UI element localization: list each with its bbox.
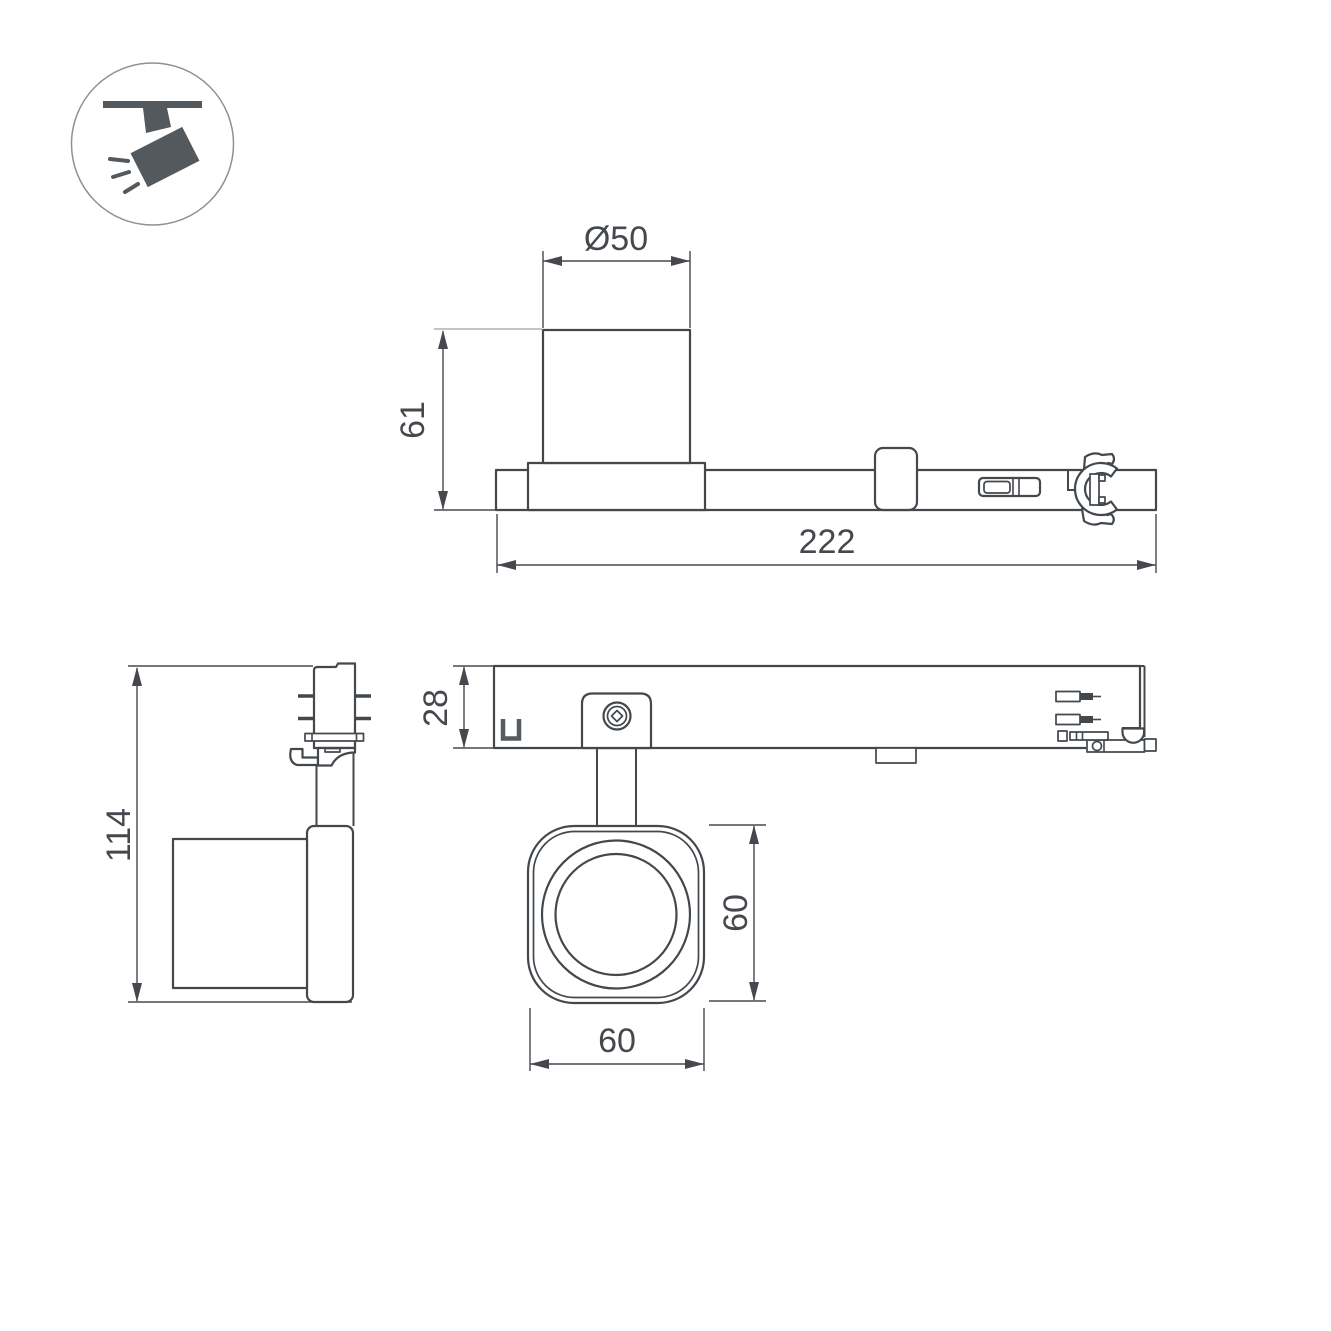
small-terminal [1058, 731, 1067, 741]
arrowhead-top [438, 330, 448, 349]
power-box [875, 448, 917, 510]
extension-lines [543, 251, 690, 328]
arrowhead-bottom [749, 982, 759, 1001]
arrowhead-bottom [459, 729, 469, 748]
latch-pin-top-foot [1099, 475, 1105, 481]
end-stub [1145, 739, 1157, 751]
legend-badge [72, 63, 234, 225]
dim-label-length-222: 222 [799, 523, 856, 561]
dim-label-diameter-50: Ø50 [584, 220, 648, 258]
extension-lines [453, 666, 493, 748]
dim-label-head-width-60: 60 [598, 1022, 636, 1060]
latch-pin-bottom-foot [1099, 497, 1105, 503]
latch-pin [1090, 474, 1099, 505]
dim-label-head-height-60: 60 [717, 894, 755, 932]
dim-label-height-61: 61 [394, 401, 432, 439]
arrowhead-left [543, 256, 562, 266]
pin-tip [1080, 716, 1093, 723]
arrowhead-bottom [132, 983, 142, 1002]
arrowhead-top [749, 825, 759, 844]
dimension-diameter-50: Ø50 [543, 220, 690, 328]
lens-ring-inner [556, 854, 677, 975]
dimension-length-222: 222 [497, 514, 1156, 573]
arrowhead-top [459, 666, 469, 685]
dim-label-track-height-28: 28 [417, 689, 455, 727]
adapter-hook [290, 749, 318, 765]
view-profile: 114 [100, 664, 371, 1003]
adapter-under-tab [876, 748, 916, 763]
dimension-head-width-60: 60 [530, 1008, 704, 1071]
arrowhead-top [132, 667, 142, 686]
arrowhead-right [685, 1059, 704, 1069]
arrowhead-left [497, 560, 516, 570]
mount-base [528, 463, 705, 510]
pin-tip [1080, 693, 1093, 700]
end-screw [1093, 742, 1102, 751]
pin-body [1056, 692, 1080, 702]
dimension-height-114: 114 [100, 667, 142, 1002]
arrowhead-bottom [438, 491, 448, 510]
head-body [173, 839, 307, 988]
lamp-cylinder [543, 330, 690, 463]
pin-body [1056, 715, 1080, 725]
technical-drawing: Ø50 61 222 [0, 0, 1331, 1331]
dim-label-height-114: 114 [100, 808, 138, 862]
adapter-cross-bar [305, 734, 364, 742]
arrowhead-right [1137, 560, 1156, 570]
selector-knob [984, 482, 1010, 494]
flange-detail [325, 749, 340, 753]
end-round-latch [1123, 729, 1145, 743]
head-stem-lines [597, 748, 636, 827]
dimension-track-height-28: 28 [417, 666, 493, 748]
track-bar-glyph [103, 101, 202, 108]
view-side-elevation: Ø50 61 222 [394, 220, 1156, 573]
dimension-head-height-60: 60 [709, 825, 766, 1001]
head-back-plate [307, 826, 353, 1002]
view-underside: 28 60 60 [417, 666, 1156, 1071]
arrowhead-right [671, 256, 690, 266]
arrowhead-left [530, 1059, 549, 1069]
